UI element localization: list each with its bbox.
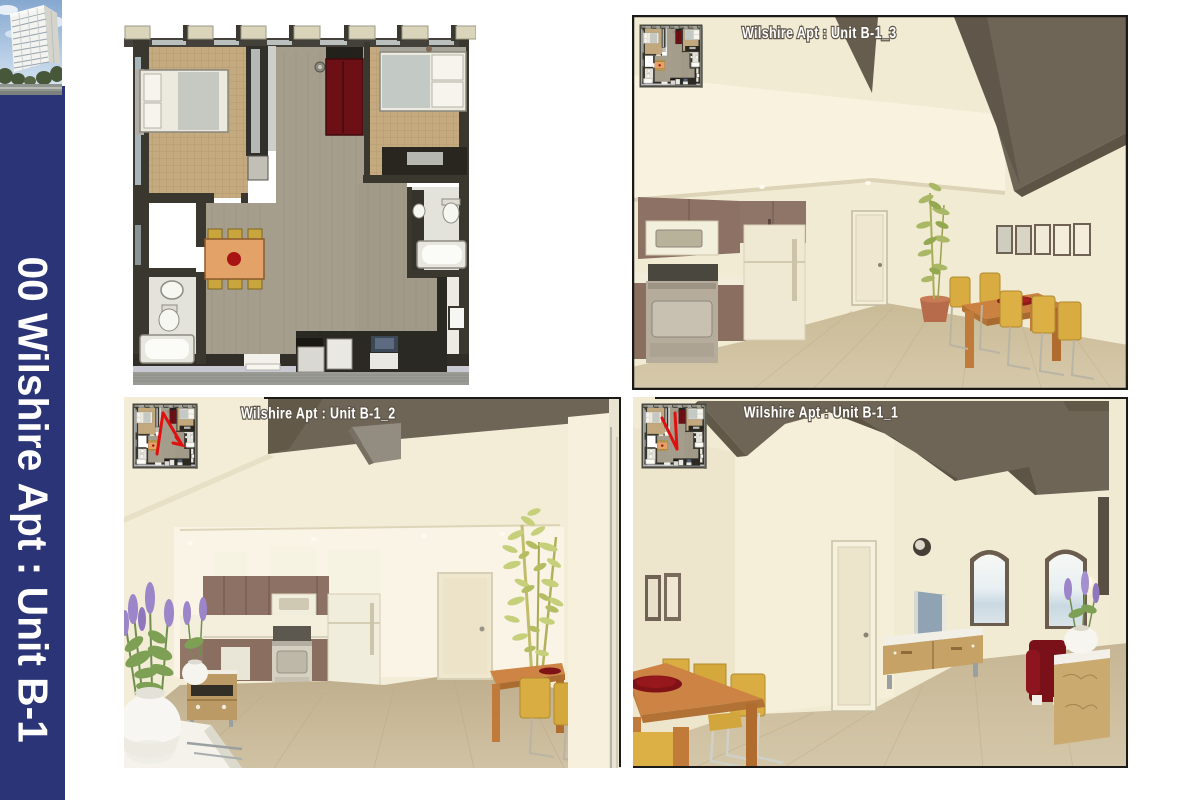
svg-text:Wilshire Apt : Unit B-1_2: Wilshire Apt : Unit B-1_2 <box>241 405 396 423</box>
svg-text:Wilshire Apt : Unit B-1_3: Wilshire Apt : Unit B-1_3 <box>742 25 897 43</box>
svg-text:Wilshire Apt : Unit B-1_1: Wilshire Apt : Unit B-1_1 <box>744 404 899 422</box>
